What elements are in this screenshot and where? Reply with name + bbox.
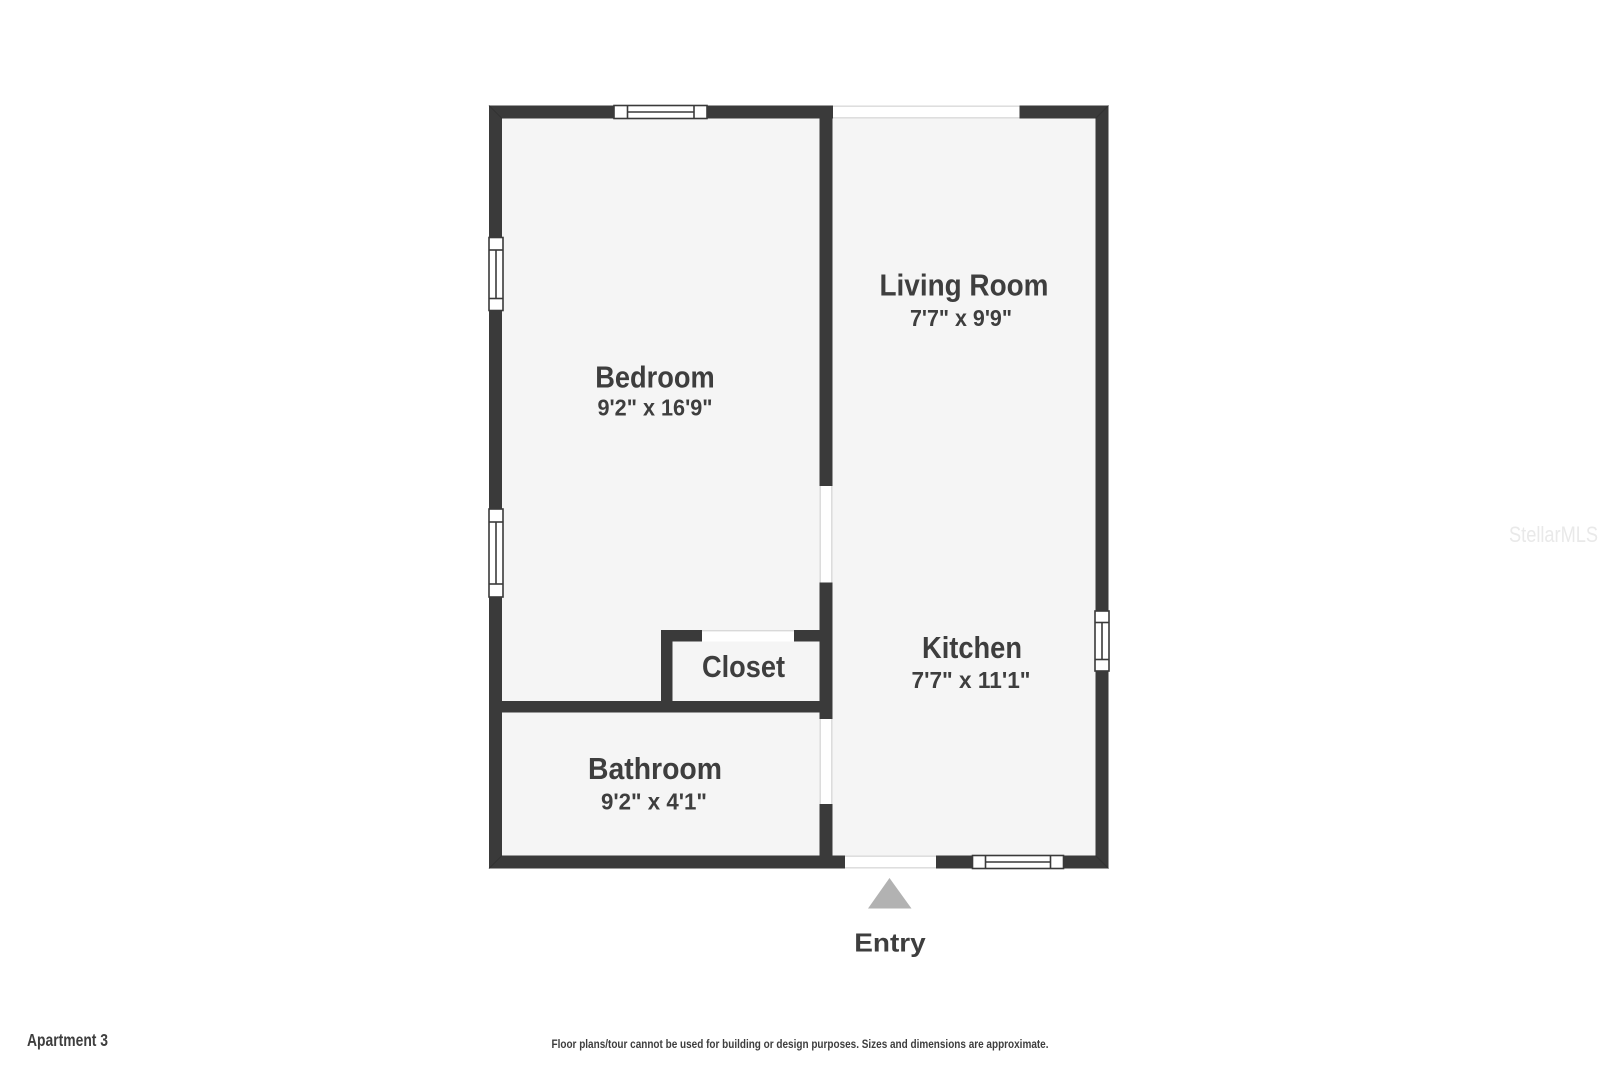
svg-text:7'7" x 11'1": 7'7" x 11'1" [912, 667, 1031, 693]
svg-text:Closet: Closet [702, 649, 785, 684]
svg-text:9'2" x 4'1": 9'2" x 4'1" [601, 789, 707, 815]
svg-text:Bathroom: Bathroom [588, 751, 722, 786]
svg-text:Apartment 3: Apartment 3 [27, 1030, 108, 1050]
svg-text:7'7" x 9'9": 7'7" x 9'9" [910, 305, 1012, 331]
svg-text:Bedroom: Bedroom [595, 360, 715, 395]
svg-text:StellarMLS: StellarMLS [1509, 522, 1598, 547]
svg-text:Floor plans/tour cannot be use: Floor plans/tour cannot be used for buil… [552, 1037, 1049, 1051]
svg-text:9'2" x 16'9": 9'2" x 16'9" [598, 395, 713, 421]
svg-text:Entry: Entry [854, 928, 926, 958]
svg-text:Kitchen: Kitchen [922, 630, 1022, 665]
svg-text:Living Room: Living Room [880, 268, 1049, 303]
